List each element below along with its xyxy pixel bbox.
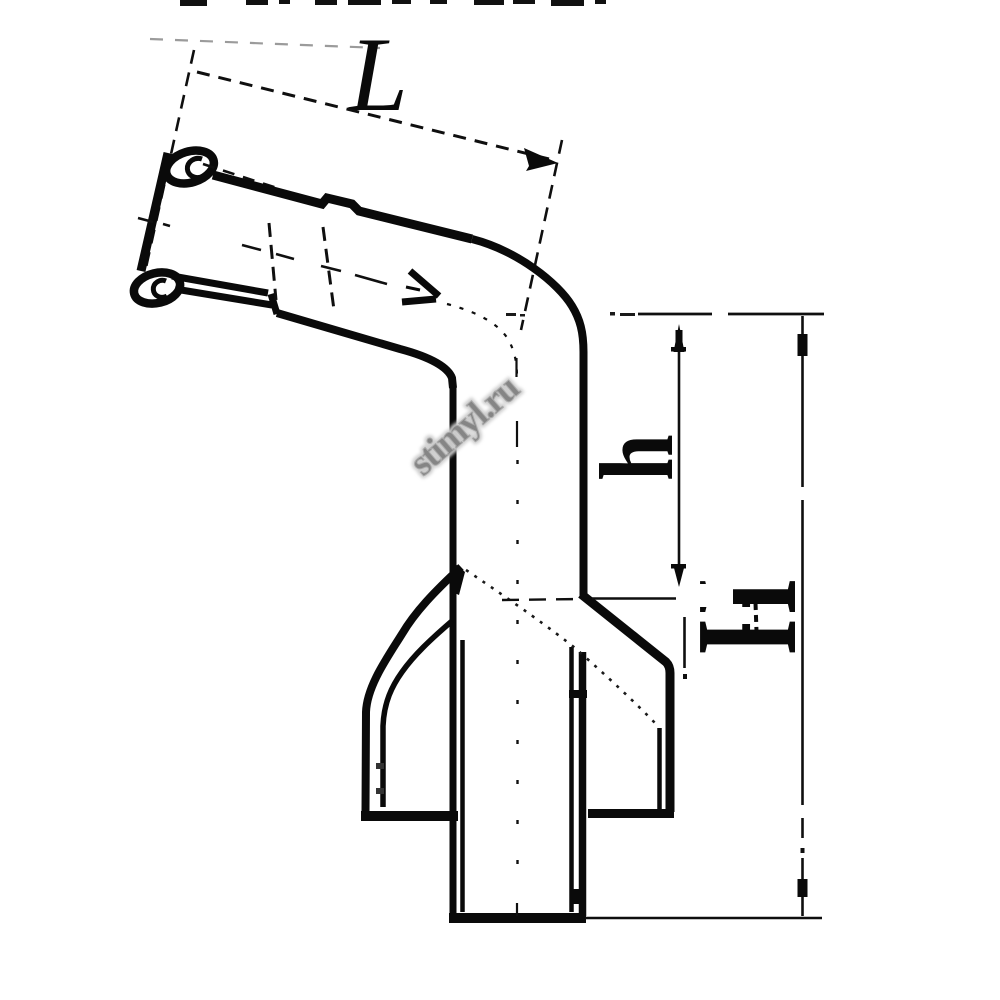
svg-text:h: h bbox=[578, 434, 695, 481]
